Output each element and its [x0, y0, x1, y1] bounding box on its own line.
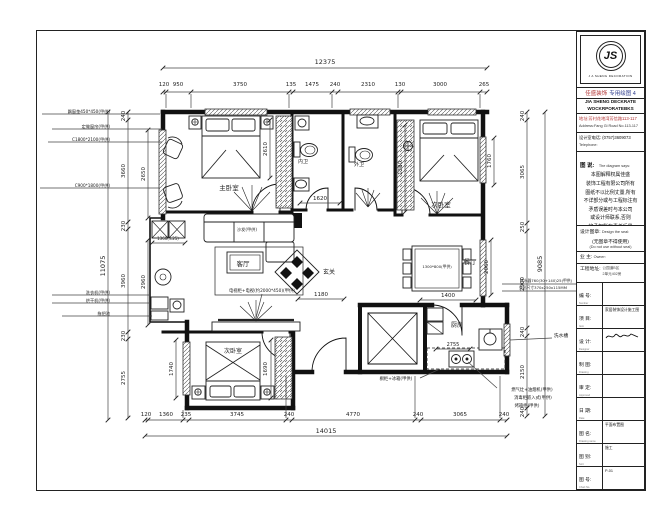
- row-label: 设 计:Designer: [577, 329, 603, 351]
- room-label-inner-bath: 内卫: [298, 158, 308, 165]
- plan-dim-text: 3960: [121, 274, 127, 288]
- row-value: [603, 352, 644, 374]
- row-value: [603, 283, 644, 305]
- window-size-note: C1800*2100(甲供): [72, 136, 110, 143]
- row-label: 图 名:Drawing name: [577, 421, 603, 443]
- plan-dim-text: 240: [520, 326, 526, 337]
- note-line: 图纸不以比例丈量,所有: [580, 190, 641, 199]
- room-label-dining-room: 餐厅: [464, 257, 478, 266]
- title-block-rows: 编 号:Number项 目:Item家居装饰设计施工图设 计:Designer制…: [577, 283, 644, 489]
- plan-dim-text: 1180: [314, 292, 328, 298]
- plan-dim-text: 2650: [141, 167, 147, 181]
- owner-en: Owner:: [594, 255, 606, 259]
- cabinet-fridge-note: 橱柜+冰箱(甲供): [380, 375, 413, 382]
- plan-dim-text: 250: [520, 221, 526, 232]
- dim-overall-right: 9085: [536, 256, 544, 273]
- oven-note: 烤箱柜(甲供): [515, 402, 540, 409]
- plan-dim-text: 240: [413, 412, 424, 418]
- row-label: 制 图:Drawing: [577, 352, 603, 374]
- row-value: 家居装饰设计施工图: [603, 306, 644, 328]
- site-line1: 公园道B区: [603, 266, 622, 271]
- dim-overall-left: 11075: [99, 256, 107, 277]
- designer-signature: [605, 331, 639, 341]
- plan-dim-text: 130: [395, 82, 406, 88]
- dim-chain: [468, 362, 497, 388]
- plan-dim-text: 1360: [159, 412, 173, 418]
- mop-pool-note: 拖把池: [97, 310, 110, 317]
- stove: [449, 351, 474, 367]
- plan-dim-text: 3065: [520, 165, 526, 179]
- brand-cn-a: 佳盛装饰: [585, 89, 607, 97]
- brand-chinese: 佳盛装饰 专用绘图 4: [577, 88, 644, 98]
- tv-note: 电视柜+电视(约2000*450)(甲供): [229, 287, 295, 294]
- row-value: P-01: [603, 467, 644, 489]
- plan-dim-text: 2610: [263, 142, 269, 156]
- owner-cell: 业 主: Owner:: [577, 252, 644, 264]
- row-value: 施工: [603, 444, 644, 466]
- plan-dim-text: 2960: [141, 275, 147, 289]
- company-logo-cell: JS J A SHENG DECORATION: [577, 32, 644, 88]
- window-bath-top: [350, 109, 390, 115]
- sofa-note: 沙发(甲供): [237, 226, 257, 233]
- title-block-row: 设 计:Designer: [577, 329, 644, 352]
- stamp-cell: 设计图章: Design the seal: (无图章不得使用) (Do not…: [577, 226, 644, 251]
- bed-second-bedroom: [404, 120, 479, 181]
- notes-lines: 本图解释权属佳盛装饰工程有限公司所有图纸不以比例丈量,所有不详部分或与工程标注有…: [580, 172, 641, 226]
- plan-dim-text: 120: [141, 412, 152, 418]
- water-heater-note: 热水器760(30+140)25(甲供): [520, 278, 573, 283]
- window-size-note-2: C900*1800(甲供): [75, 182, 111, 189]
- room-label-living-room: 客厅: [237, 259, 251, 268]
- floor-plan: .dimline{stroke:#444;stroke-width:0.7;} …: [0, 0, 650, 520]
- plan-dim-text: 1620: [313, 196, 327, 202]
- dim-chain: [150, 241, 188, 246]
- washer-note: 洗衣机(甲供): [86, 289, 111, 296]
- window-bedroom2-right: [480, 137, 486, 183]
- stamp-label: 设计图章:: [580, 230, 601, 235]
- room-label-master-bedroom: 主卧室: [219, 183, 239, 192]
- plan-dim-text: 950: [173, 82, 184, 88]
- kitchen-fixtures: [427, 308, 505, 369]
- note-line: 本图解释权属佳盛: [580, 172, 641, 181]
- site-line2: 2单元402房: [603, 272, 622, 277]
- title-block-row: 图 别:Sort施工: [577, 444, 644, 467]
- row-label: 图 别:Sort: [577, 444, 603, 466]
- plan-dim-text: 240: [520, 110, 526, 121]
- title-block-row: 编 号:Number: [577, 283, 644, 306]
- row-value: [603, 375, 644, 397]
- dim-chain: [161, 66, 490, 71]
- bed-master: [189, 116, 273, 178]
- stamp-warning: (无图章不得使用): [580, 238, 641, 245]
- inner-bath-fixtures: [294, 116, 318, 191]
- row-value: 平面布置图: [603, 421, 644, 443]
- tv-cabinet: [212, 320, 300, 331]
- dim-overall-top: 12375: [315, 58, 336, 66]
- brand-english: JIA SHENG DECKRATE WOCKRPORATEBKS: [577, 99, 644, 114]
- plan-dim-text: 1690: [263, 362, 269, 376]
- plan-dim-text: 2755: [121, 371, 127, 385]
- address-cn: 地址:芳村花地湾芳信路113-117: [579, 116, 642, 123]
- title-block: JS J A SHENG DECORATION 佳盛装饰 专用绘图 4 JIA …: [576, 31, 645, 490]
- plan-dim-text: 1740: [169, 362, 175, 376]
- plan-dim-text: 3065: [453, 412, 467, 418]
- elevator-shaft: [360, 305, 425, 372]
- dryer-note: 烘干机(甲供): [86, 297, 111, 304]
- stamp-warning-en: (Do not use without seal): [580, 245, 641, 249]
- plan-dim-text: 3745: [230, 412, 244, 418]
- plan-dim-text: 240: [284, 412, 295, 418]
- plan-dim-text: 3000: [433, 82, 447, 88]
- title-block-row: 日 期:Date: [577, 398, 644, 421]
- plan-dim-text: 240: [499, 412, 510, 418]
- window-master-top: [205, 109, 267, 115]
- wardrobe-bedroom3: [275, 337, 292, 399]
- plan-dim-text: 135: [286, 82, 297, 88]
- row-value: [603, 329, 644, 351]
- stove-note: 燃气灶+油烟机(甲供): [511, 386, 553, 393]
- plan-dim-text: 1360(±25): [157, 236, 179, 241]
- note-line: 矛盾误差时与本公司: [580, 207, 641, 216]
- window-master-left: [159, 130, 166, 214]
- address-cell: 地址:芳村花地湾芳信路113-117 Address:Fang Gi Road …: [577, 114, 644, 133]
- notes-cell: 图 说: The diagram says: 本图解释权属佳盛装饰工程有限公司所…: [577, 152, 644, 226]
- title-block-row: 图 号:Chart No.P-01: [577, 467, 644, 489]
- phone-en: Telephone:: [579, 142, 642, 148]
- wardrobe-master: [276, 116, 292, 208]
- title-block-row: 图 名:Drawing name平面布置图: [577, 421, 644, 444]
- row-label: 日 期:Date: [577, 398, 603, 420]
- title-block-row: 审 定:Approved: [577, 375, 644, 398]
- window-bedroom3-left: [183, 342, 190, 395]
- window-bedroom2-top: [428, 109, 476, 115]
- row-label: 项 目:Item: [577, 306, 603, 328]
- brand-en-line2: WOCKRPORATEBKS: [587, 106, 633, 113]
- room-label-outer-bath: 外卫: [354, 161, 364, 168]
- note-line: 或设计师联系,否则: [580, 215, 641, 224]
- plan-dim-text: 2060: [484, 260, 490, 274]
- title-block-row: 制 图:Drawing: [577, 352, 644, 375]
- note-line: 不详部分或与工程标注有: [580, 198, 641, 207]
- site-cell: 工程地址: 公园道B区 2单元402房: [577, 264, 644, 283]
- plan-dim-text: 2150: [520, 365, 526, 379]
- plan-dim-text: 230: [121, 330, 127, 341]
- row-label: 审 定:Approved: [577, 375, 603, 397]
- curtain-note: 定做窗帘(甲供): [82, 123, 111, 130]
- brand-cn-b: 专用绘图 4: [609, 89, 636, 97]
- dim-overall-bottom: 14015: [316, 427, 337, 435]
- row-label: 编 号:Number: [577, 283, 603, 305]
- plan-dim-text: 2755: [447, 342, 460, 348]
- note-line: 装饰工程有限公司所有: [580, 181, 641, 190]
- room-label-entry: 玄关: [323, 268, 335, 276]
- plan-dim-text: 240: [121, 110, 127, 121]
- water-heater-size-note: 外形尺寸370x250x115MM: [519, 285, 567, 290]
- address-en: Address:Fang Gi Road No.113-117: [579, 123, 642, 129]
- company-logo: JS: [596, 41, 626, 71]
- logo-initials: JS: [604, 50, 617, 62]
- brand-en-line1: JIA SHENG DECKRATE: [585, 99, 636, 106]
- plan-dim-text: 265: [479, 82, 490, 88]
- owner-label: 业 主:: [580, 255, 592, 260]
- plan-dim-text: 3660: [121, 164, 127, 178]
- sterilizer-note: 消毒柜嵌入式(甲供): [514, 394, 552, 401]
- plan-dim-text: 1475: [305, 82, 319, 88]
- stamp-label-en: Design the seal:: [602, 230, 629, 234]
- sink-note: 洗水槽: [554, 332, 569, 339]
- phone-cell: 设计室电话: (0757)3609073 Telephone:: [577, 133, 644, 152]
- title-block-row: 项 目:Item家居装饰设计施工图: [577, 306, 644, 329]
- row-label: 图 号:Chart No.: [577, 467, 603, 489]
- plan-dim-text: 120: [159, 82, 170, 88]
- plan-dim-text: 240: [330, 82, 341, 88]
- dim-chain: [161, 90, 490, 95]
- outer-bath-fixtures: [349, 115, 378, 162]
- fridge: [427, 308, 443, 321]
- plan-dim-text: 235: [181, 412, 192, 418]
- row-value: [603, 398, 644, 420]
- plan-dim-text: 1760: [487, 154, 493, 168]
- logo-ring-text: J A SHENG DECORATION: [588, 74, 632, 78]
- room-label-third-bedroom: 次卧室: [224, 347, 242, 355]
- plan-dim-text: 2310: [361, 82, 375, 88]
- kitchen-sink: [479, 329, 502, 350]
- plan-dim-text: 4770: [346, 412, 360, 418]
- notes-title-en: The diagram says:: [599, 164, 630, 168]
- plan-dim-text: 1380: [398, 161, 404, 175]
- notes-title-cn: 图 说:: [580, 163, 594, 169]
- room-label-kitchen: 厨房: [451, 321, 463, 329]
- plan-dim-text: 1400: [441, 293, 455, 299]
- phone-cn: 设计室电话: (0757)3609073: [579, 135, 642, 142]
- furniture: [151, 115, 505, 400]
- bay-window-note: 飘窗垫450*450(甲供): [68, 108, 111, 115]
- site-label: 工程地址:: [580, 265, 601, 281]
- dim-chain: [143, 418, 510, 423]
- plan-dim-text: 230: [121, 220, 127, 231]
- plan-dim-text: 3750: [233, 82, 247, 88]
- dim-chain: [510, 338, 552, 340]
- dining-table-note: 1300*800(甲供): [422, 264, 452, 269]
- room-label-second-bedroom: 次卧室: [431, 200, 451, 209]
- floorplan-sheet: { "title_block": { "logo_initials": "JS"…: [0, 0, 650, 520]
